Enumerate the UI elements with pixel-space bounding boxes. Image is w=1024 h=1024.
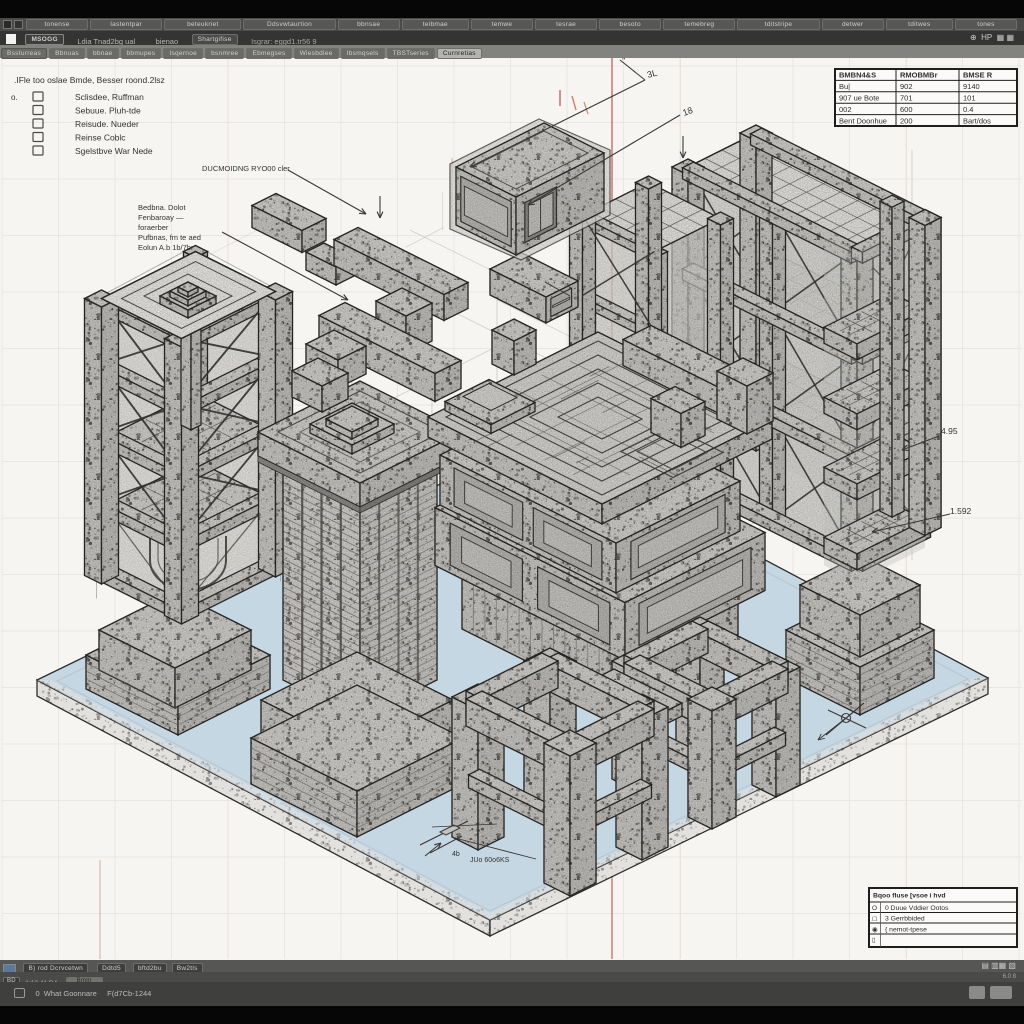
svg-text:▯: ▯ [872,937,876,944]
svg-text:3 Gerrbbided: 3 Gerrbbided [885,916,925,923]
svg-text:Bart/dos: Bart/dos [963,116,991,125]
svg-text:BMSE R: BMSE R [963,71,993,80]
svg-text:Bqoo fluse [vsoe i hvd: Bqoo fluse [vsoe i hvd [873,893,946,900]
svg-text:JUo 60o6KS: JUo 60o6KS [470,857,510,864]
svg-text:002: 002 [839,105,852,114]
svg-text:DUCMOIDNG RYO00 cler: DUCMOIDNG RYO00 cler [202,164,290,173]
svg-text:701: 701 [900,94,913,103]
svg-text:foraerber: foraerber [138,223,169,232]
svg-text:101: 101 [963,94,976,103]
svg-text:4b: 4b [452,851,460,858]
svg-text:Bedbna. Dolot: Bedbna. Dolot [138,203,186,212]
svg-text:0 Duue Vddier Ootos: 0 Duue Vddier Ootos [885,905,949,912]
svg-text:Bent Doonhue: Bent Doonhue [839,116,887,125]
svg-text:Sclisdee, Ruffman: Sclisdee, Ruffman [75,92,144,102]
svg-text:Reisude. Nueder: Reisude. Nueder [75,119,139,129]
svg-text:o.: o. [11,93,18,102]
svg-text:902: 902 [900,82,913,91]
svg-text:200: 200 [900,116,913,125]
svg-text:600: 600 [900,105,913,114]
svg-text:9140: 9140 [963,82,980,91]
svg-text:◻: ◻ [872,916,878,923]
svg-text:Eolun A.b 1b/7br: Eolun A.b 1b/7br [138,243,194,252]
svg-text:RMOBMBr: RMOBMBr [900,71,938,80]
svg-text:O: O [872,905,877,912]
svg-text:907 ue Bote: 907 ue Bote [839,94,879,103]
svg-text:Pufbnas, fm te aed: Pufbnas, fm te aed [138,233,201,242]
svg-text:.IFle too oslae Bmde, Besser r: .IFle too oslae Bmde, Besser roond.2lsz [14,75,165,85]
svg-text:Sebuue. Pluh-tde: Sebuue. Pluh-tde [75,106,141,116]
svg-text:Bu|: Bu| [839,82,850,91]
svg-text:Fenbaroay —: Fenbaroay — [138,213,184,222]
svg-text:0.4: 0.4 [963,105,973,114]
svg-text:Sgelstbve War Nede: Sgelstbve War Nede [75,146,153,156]
svg-text:Reinse Coblc: Reinse Coblc [75,133,126,143]
svg-text:1.592: 1.592 [950,506,972,516]
svg-text:{ nemot-tpese: { nemot-tpese [885,926,927,933]
svg-text:BMBN4&S: BMBN4&S [839,71,876,80]
svg-text:◉: ◉ [872,926,878,933]
svg-text:4.95: 4.95 [941,426,958,436]
